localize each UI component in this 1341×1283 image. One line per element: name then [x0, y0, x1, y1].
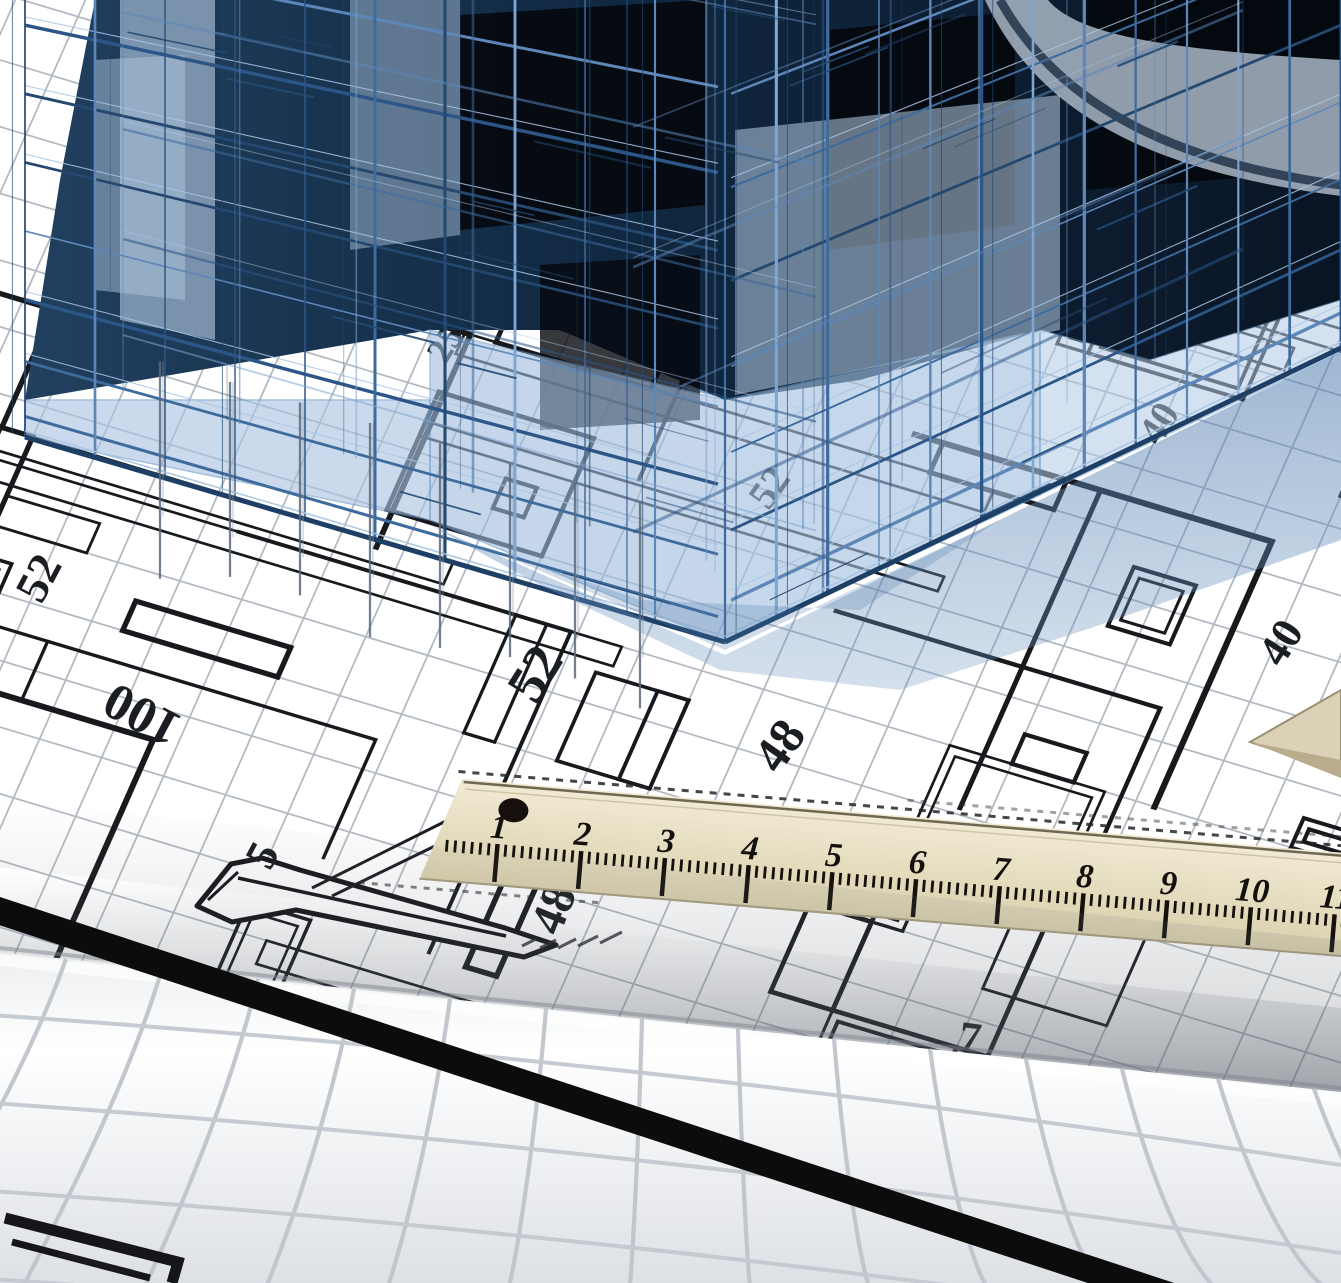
ruler-number: 10: [1234, 871, 1271, 911]
blueprint-photo: 52 100 52 48 40 40 5 48 25 52: [0, 0, 1341, 1283]
ruler-number: 8: [1075, 858, 1095, 896]
ruler-number: 9: [1159, 865, 1179, 903]
ruler-number: 3: [655, 822, 676, 860]
glass-panel: [95, 55, 185, 300]
ruler-number: 11: [1318, 878, 1341, 918]
ruler-number: 1: [489, 808, 509, 846]
building-void: [460, 0, 705, 230]
ruler-number: 4: [739, 829, 760, 867]
ruler-number: 2: [572, 815, 593, 853]
ruler-number: 6: [907, 844, 927, 882]
ruler-number: 5: [824, 837, 844, 875]
scene-canvas: 52 100 52 48 40 40 5 48 25 52: [0, 0, 1341, 1283]
